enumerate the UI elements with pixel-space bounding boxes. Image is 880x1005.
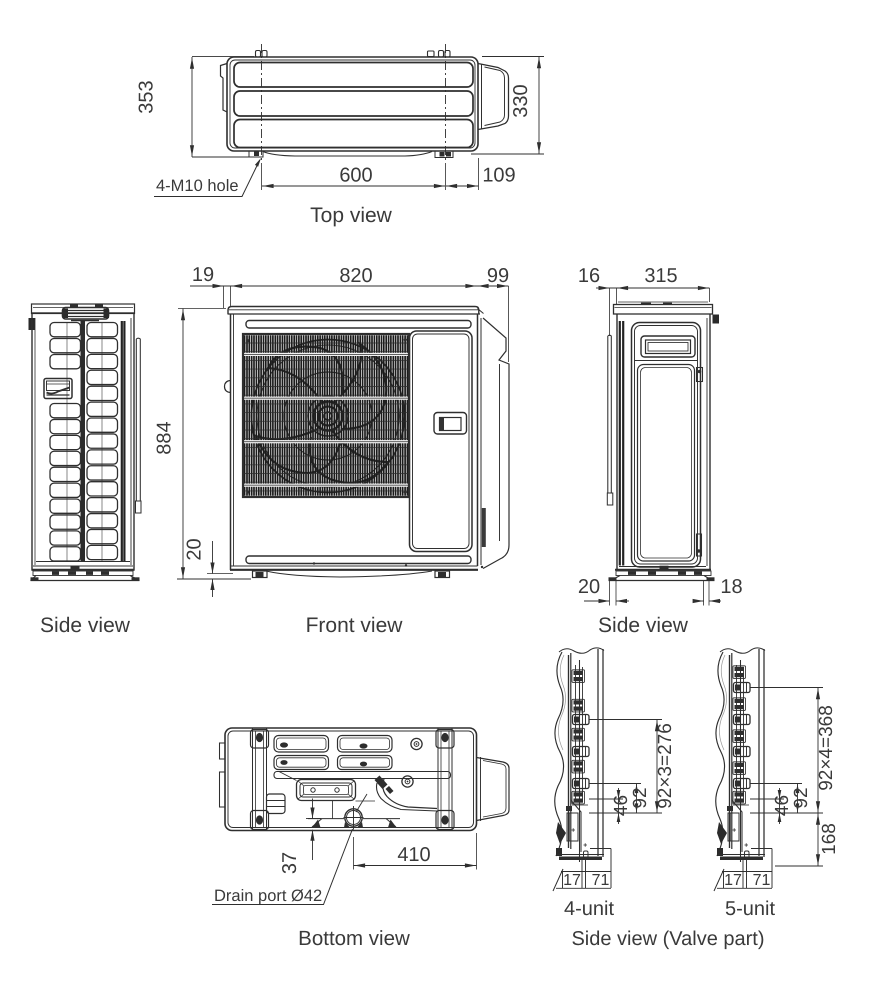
svg-text:92: 92 [791, 787, 812, 808]
svg-text:92: 92 [630, 787, 651, 808]
svg-text:71: 71 [753, 872, 771, 889]
svg-text:Side view: Side view [598, 614, 689, 637]
svg-text:Side view (Valve part): Side view (Valve part) [571, 928, 764, 950]
svg-text:Side view: Side view [40, 614, 131, 637]
svg-text:Drain port Ø42: Drain port Ø42 [214, 887, 322, 905]
svg-text:109: 109 [482, 165, 515, 187]
svg-text:820: 820 [339, 265, 372, 287]
svg-text:5-unit: 5-unit [725, 898, 775, 920]
svg-text:20: 20 [578, 576, 600, 598]
svg-text:71: 71 [592, 872, 610, 889]
svg-text:Bottom view: Bottom view [298, 927, 410, 950]
svg-text:353: 353 [136, 80, 158, 113]
svg-text:Top view: Top view [310, 204, 393, 227]
svg-text:315: 315 [644, 265, 677, 287]
svg-text:99: 99 [487, 265, 509, 287]
svg-text:92×3=276: 92×3=276 [655, 723, 676, 809]
svg-text:884: 884 [154, 421, 176, 454]
svg-text:600: 600 [339, 165, 372, 187]
svg-text:17: 17 [724, 872, 742, 889]
svg-text:4-M10 hole: 4-M10 hole [156, 177, 239, 195]
svg-text:18: 18 [720, 576, 742, 598]
svg-text:330: 330 [510, 84, 532, 117]
svg-text:17: 17 [563, 872, 581, 889]
svg-text:16: 16 [578, 265, 600, 287]
svg-text:410: 410 [397, 844, 430, 866]
svg-text:168: 168 [819, 823, 840, 855]
svg-text:4-unit: 4-unit [564, 898, 614, 920]
svg-text:19: 19 [192, 264, 214, 286]
svg-text:20: 20 [184, 538, 206, 560]
svg-text:92×4=368: 92×4=368 [816, 705, 837, 791]
svg-text:37: 37 [279, 852, 301, 874]
svg-text:46: 46 [611, 795, 632, 816]
svg-text:Front view: Front view [306, 614, 404, 637]
